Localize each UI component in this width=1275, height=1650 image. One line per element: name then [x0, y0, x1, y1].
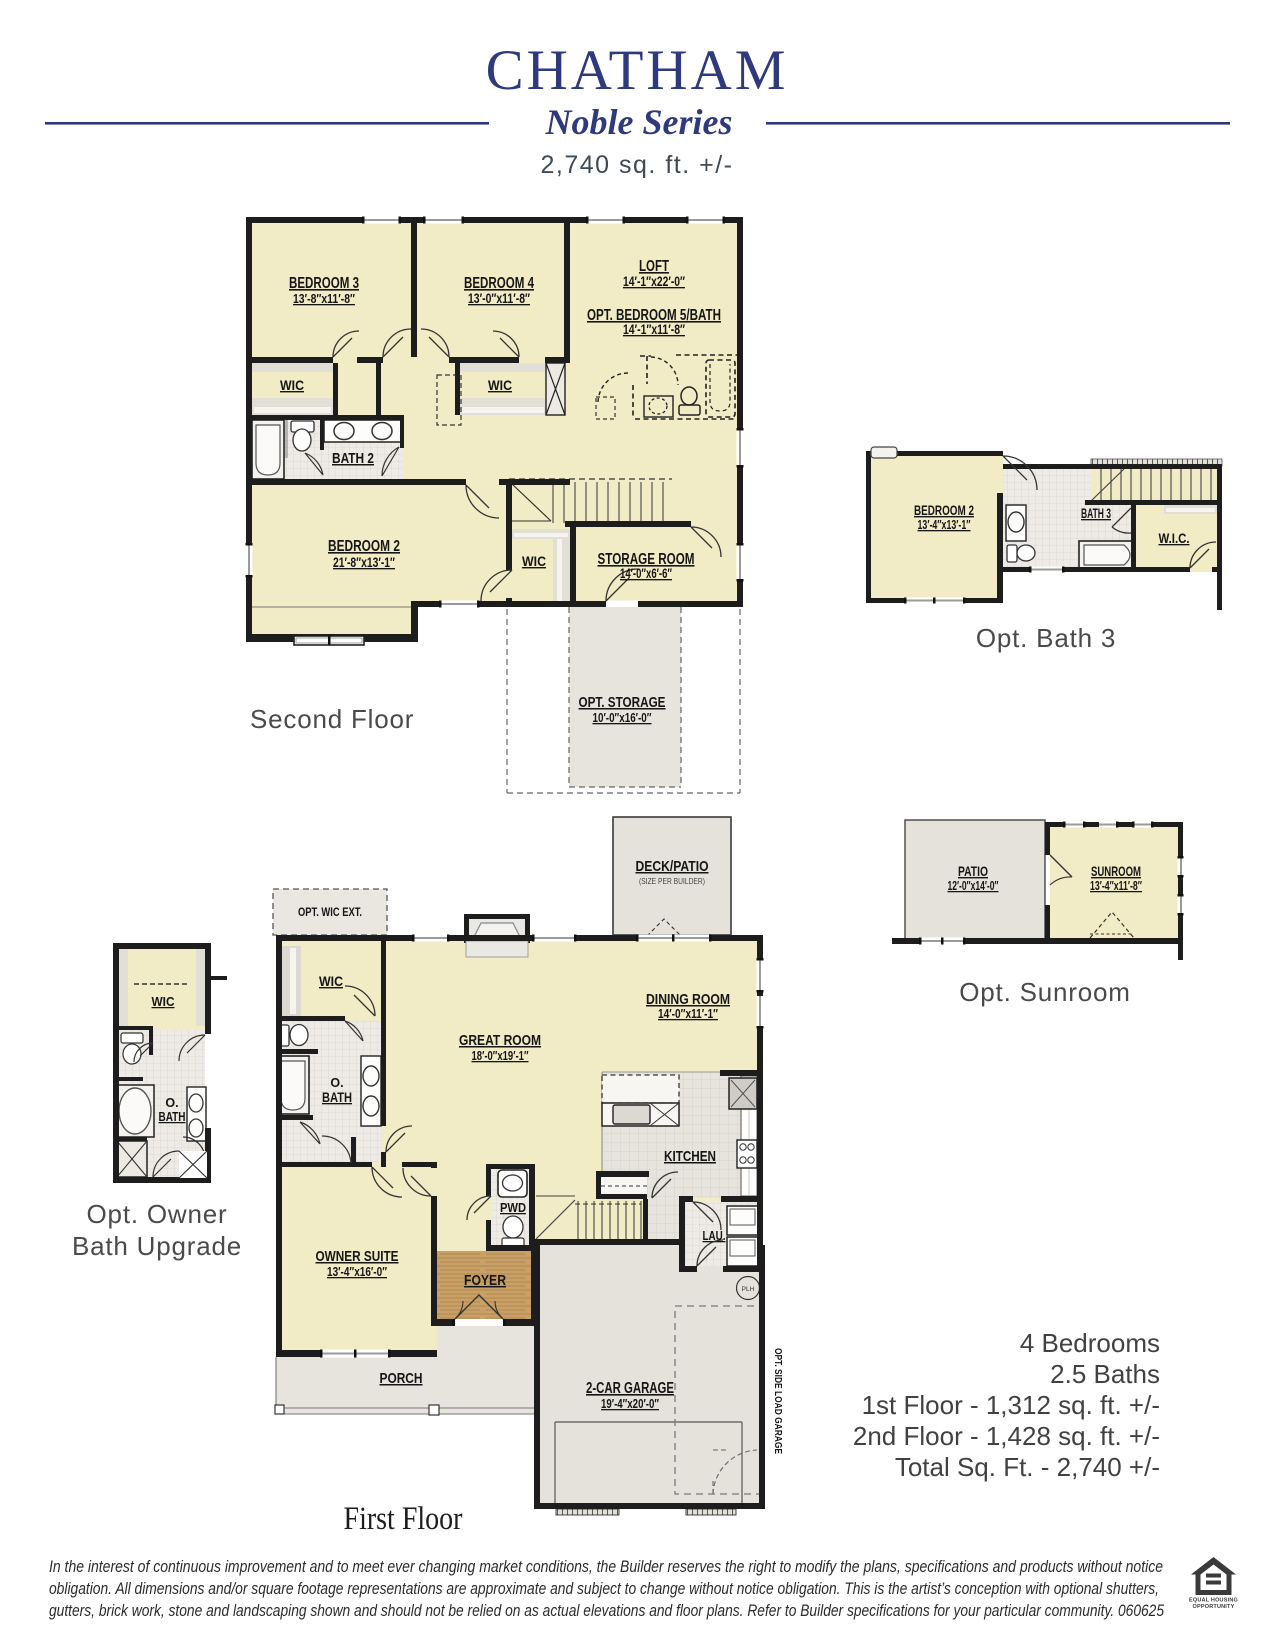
svg-text:21′-8″x13′-1″: 21′-8″x13′-1″ — [333, 555, 395, 570]
svg-text:12′-0″x14′-0″: 12′-0″x14′-0″ — [948, 879, 999, 893]
svg-text:BEDROOM 3: BEDROOM 3 — [289, 275, 359, 292]
svg-text:BEDROOM 4: BEDROOM 4 — [464, 275, 534, 292]
svg-text:W.I.C.: W.I.C. — [1159, 531, 1190, 546]
svg-text:PORCH: PORCH — [380, 1370, 423, 1387]
svg-text:2-CAR GARAGE: 2-CAR GARAGE — [586, 1380, 674, 1397]
svg-text:In the interest of continuous: In the interest of continuous improvemen… — [49, 1558, 1163, 1576]
svg-text:10′-0″x16′-0″: 10′-0″x16′-0″ — [593, 710, 652, 725]
svg-text:WIC: WIC — [319, 973, 343, 989]
svg-text:BATH 2: BATH 2 — [332, 450, 374, 467]
svg-text:CHATHAM: CHATHAM — [486, 39, 789, 102]
svg-text:LAU.: LAU. — [703, 1228, 726, 1243]
svg-text:gutters, brick work, stone and: gutters, brick work, stone and landscapi… — [49, 1602, 1165, 1620]
svg-text:Second Floor: Second Floor — [250, 704, 414, 734]
svg-text:obligation. All dimensions and: obligation. All dimensions and/or square… — [49, 1580, 1159, 1598]
svg-text:BATH: BATH — [322, 1090, 352, 1105]
svg-text:Opt. Bath 3: Opt. Bath 3 — [976, 623, 1116, 653]
svg-text:OPT. STORAGE: OPT. STORAGE — [579, 694, 666, 711]
svg-text:DECK/PATIO: DECK/PATIO — [636, 858, 709, 875]
svg-text:2,740 sq. ft. +/-: 2,740 sq. ft. +/- — [541, 151, 734, 179]
svg-text:FOYER: FOYER — [464, 1273, 506, 1289]
svg-text:BEDROOM 2: BEDROOM 2 — [914, 502, 974, 518]
svg-text:14′-1″x22′-0″: 14′-1″x22′-0″ — [623, 274, 685, 289]
svg-text:13′-4″x11′-8″: 13′-4″x11′-8″ — [1090, 879, 1142, 893]
svg-text:14′-1″x11′-8″: 14′-1″x11′-8″ — [623, 322, 685, 337]
svg-text:Opt. Owner: Opt. Owner — [87, 1199, 228, 1229]
svg-text:(SIZE PER BUILDER): (SIZE PER BUILDER) — [639, 876, 705, 886]
svg-text:OPPORTUNITY: OPPORTUNITY — [1193, 1604, 1235, 1610]
svg-text:13′-4″x16′-0″: 13′-4″x16′-0″ — [327, 1264, 387, 1279]
svg-text:OPT. SIDE LOAD GARAGE: OPT. SIDE LOAD GARAGE — [772, 1348, 784, 1454]
svg-text:14′-0″x6′-6″: 14′-0″x6′-6″ — [620, 566, 672, 581]
svg-text:PATIO: PATIO — [958, 863, 988, 879]
svg-text:PWD: PWD — [500, 1200, 526, 1215]
svg-text:BEDROOM 2: BEDROOM 2 — [328, 538, 400, 555]
svg-text:PLH: PLH — [742, 1286, 755, 1293]
svg-text:O.: O. — [330, 1076, 343, 1090]
svg-text:First Floor: First Floor — [344, 1501, 463, 1537]
svg-text:14′-0″x11′-1″: 14′-0″x11′-1″ — [658, 1006, 718, 1021]
svg-text:OWNER SUITE: OWNER SUITE — [316, 1248, 399, 1265]
svg-text:19′-4″x20′-0″: 19′-4″x20′-0″ — [601, 1396, 659, 1411]
svg-text:Noble Series: Noble Series — [545, 102, 733, 142]
svg-text:LOFT: LOFT — [639, 258, 669, 275]
svg-text:KITCHEN: KITCHEN — [664, 1148, 716, 1165]
svg-text:BATH: BATH — [159, 1110, 186, 1124]
svg-text:GREAT ROOM: GREAT ROOM — [459, 1032, 541, 1049]
svg-text:OPT. WIC EXT.: OPT. WIC EXT. — [298, 905, 362, 919]
svg-text:13′-4″x13′-1″: 13′-4″x13′-1″ — [918, 517, 971, 532]
svg-text:Total Sq. Ft. - 2,740 +/-: Total Sq. Ft. - 2,740 +/- — [895, 1452, 1160, 1482]
svg-text:EQUAL HOUSING: EQUAL HOUSING — [1189, 1598, 1238, 1604]
svg-text:2nd Floor - 1,428 sq. ft. +/-: 2nd Floor - 1,428 sq. ft. +/- — [853, 1421, 1160, 1451]
svg-text:WIC: WIC — [280, 377, 304, 393]
svg-text:O.: O. — [165, 1096, 178, 1110]
svg-text:WIC: WIC — [488, 377, 512, 393]
svg-text:WIC: WIC — [152, 995, 175, 1009]
svg-text:BATH 3: BATH 3 — [1081, 506, 1111, 521]
svg-text:4 Bedrooms: 4 Bedrooms — [1020, 1328, 1160, 1358]
svg-text:18′-0″x19′-1″: 18′-0″x19′-1″ — [472, 1048, 529, 1063]
svg-text:2.5 Baths: 2.5 Baths — [1050, 1359, 1160, 1389]
svg-text:Bath Upgrade: Bath Upgrade — [72, 1231, 242, 1261]
svg-text:1st Floor - 1,312 sq. ft. +/-: 1st Floor - 1,312 sq. ft. +/- — [862, 1390, 1160, 1420]
svg-text:Opt. Sunroom: Opt. Sunroom — [959, 977, 1130, 1007]
svg-text:SUNROOM: SUNROOM — [1091, 863, 1141, 879]
svg-text:13′-8″x11′-8″: 13′-8″x11′-8″ — [293, 291, 355, 306]
svg-text:WIC: WIC — [522, 553, 546, 569]
svg-text:13′-0″x11′-8″: 13′-0″x11′-8″ — [468, 291, 530, 306]
